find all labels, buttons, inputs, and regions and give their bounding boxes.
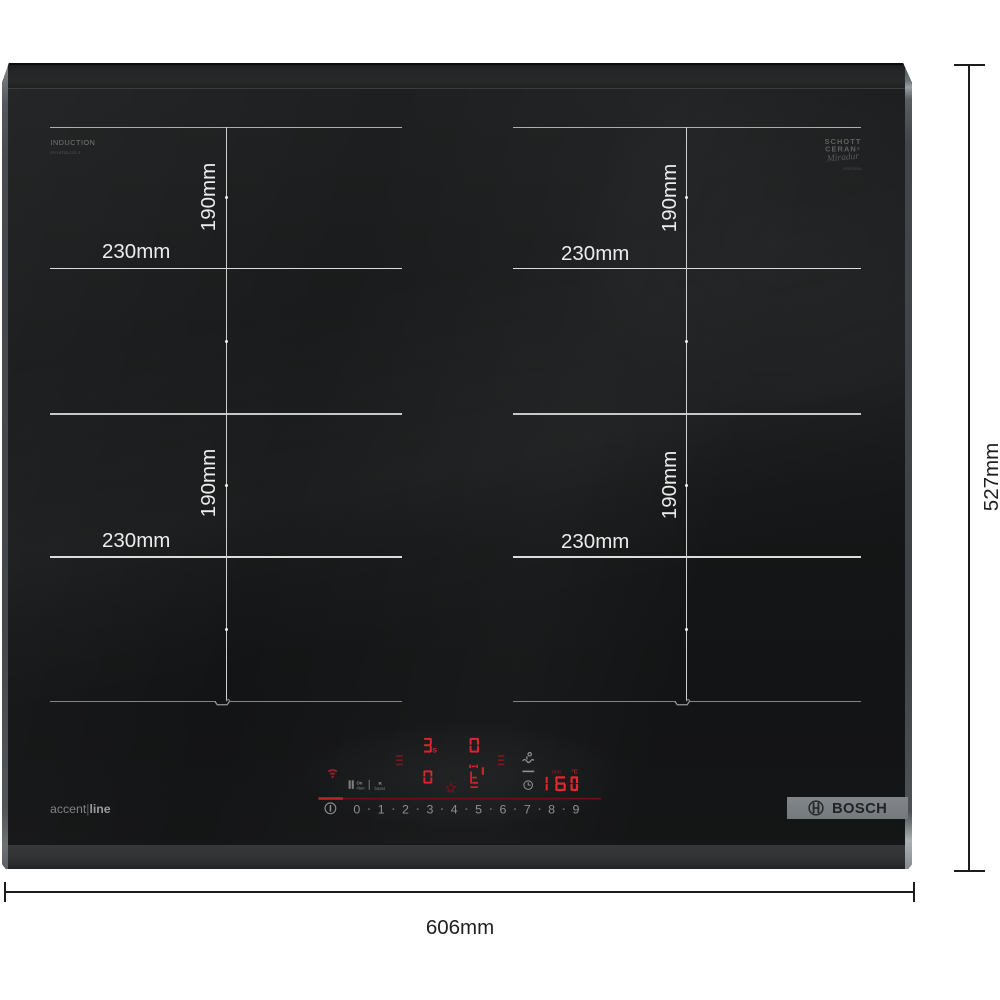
svg-text:6: 6 xyxy=(499,802,506,816)
svg-text:4: 4 xyxy=(451,802,458,816)
svg-text:2: 2 xyxy=(402,802,409,816)
svg-text:9: 9 xyxy=(573,802,580,816)
svg-text:1: 1 xyxy=(378,802,385,816)
svg-text:8: 8 xyxy=(548,802,555,816)
svg-text:°C: °C xyxy=(572,770,578,776)
svg-text:3: 3 xyxy=(426,802,433,816)
svg-text:4sec: 4sec xyxy=(357,786,366,791)
svg-text:7: 7 xyxy=(524,802,531,816)
svg-text:0: 0 xyxy=(353,802,360,816)
svg-text:5: 5 xyxy=(475,802,482,816)
svg-text:min: min xyxy=(552,769,561,775)
svg-text:s: s xyxy=(432,744,437,754)
svg-text:boost: boost xyxy=(375,786,386,791)
